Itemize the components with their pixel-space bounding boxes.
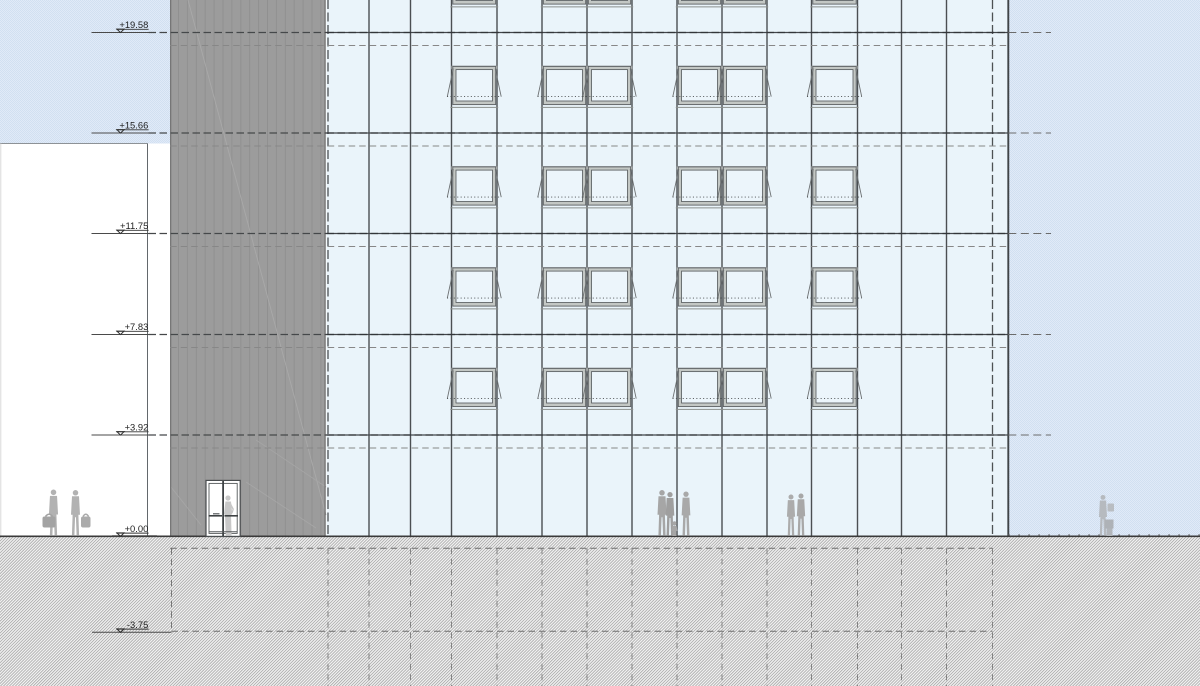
svg-text:-3.75: -3.75 [127, 619, 148, 630]
svg-text:+7.83: +7.83 [125, 321, 149, 332]
svg-text:+19.58: +19.58 [119, 19, 148, 30]
svg-text:+11.75: +11.75 [120, 220, 148, 231]
svg-text:+3.92: +3.92 [125, 422, 149, 433]
svg-text:+15.66: +15.66 [119, 120, 148, 131]
svg-text:+0.00: +0.00 [125, 523, 149, 534]
